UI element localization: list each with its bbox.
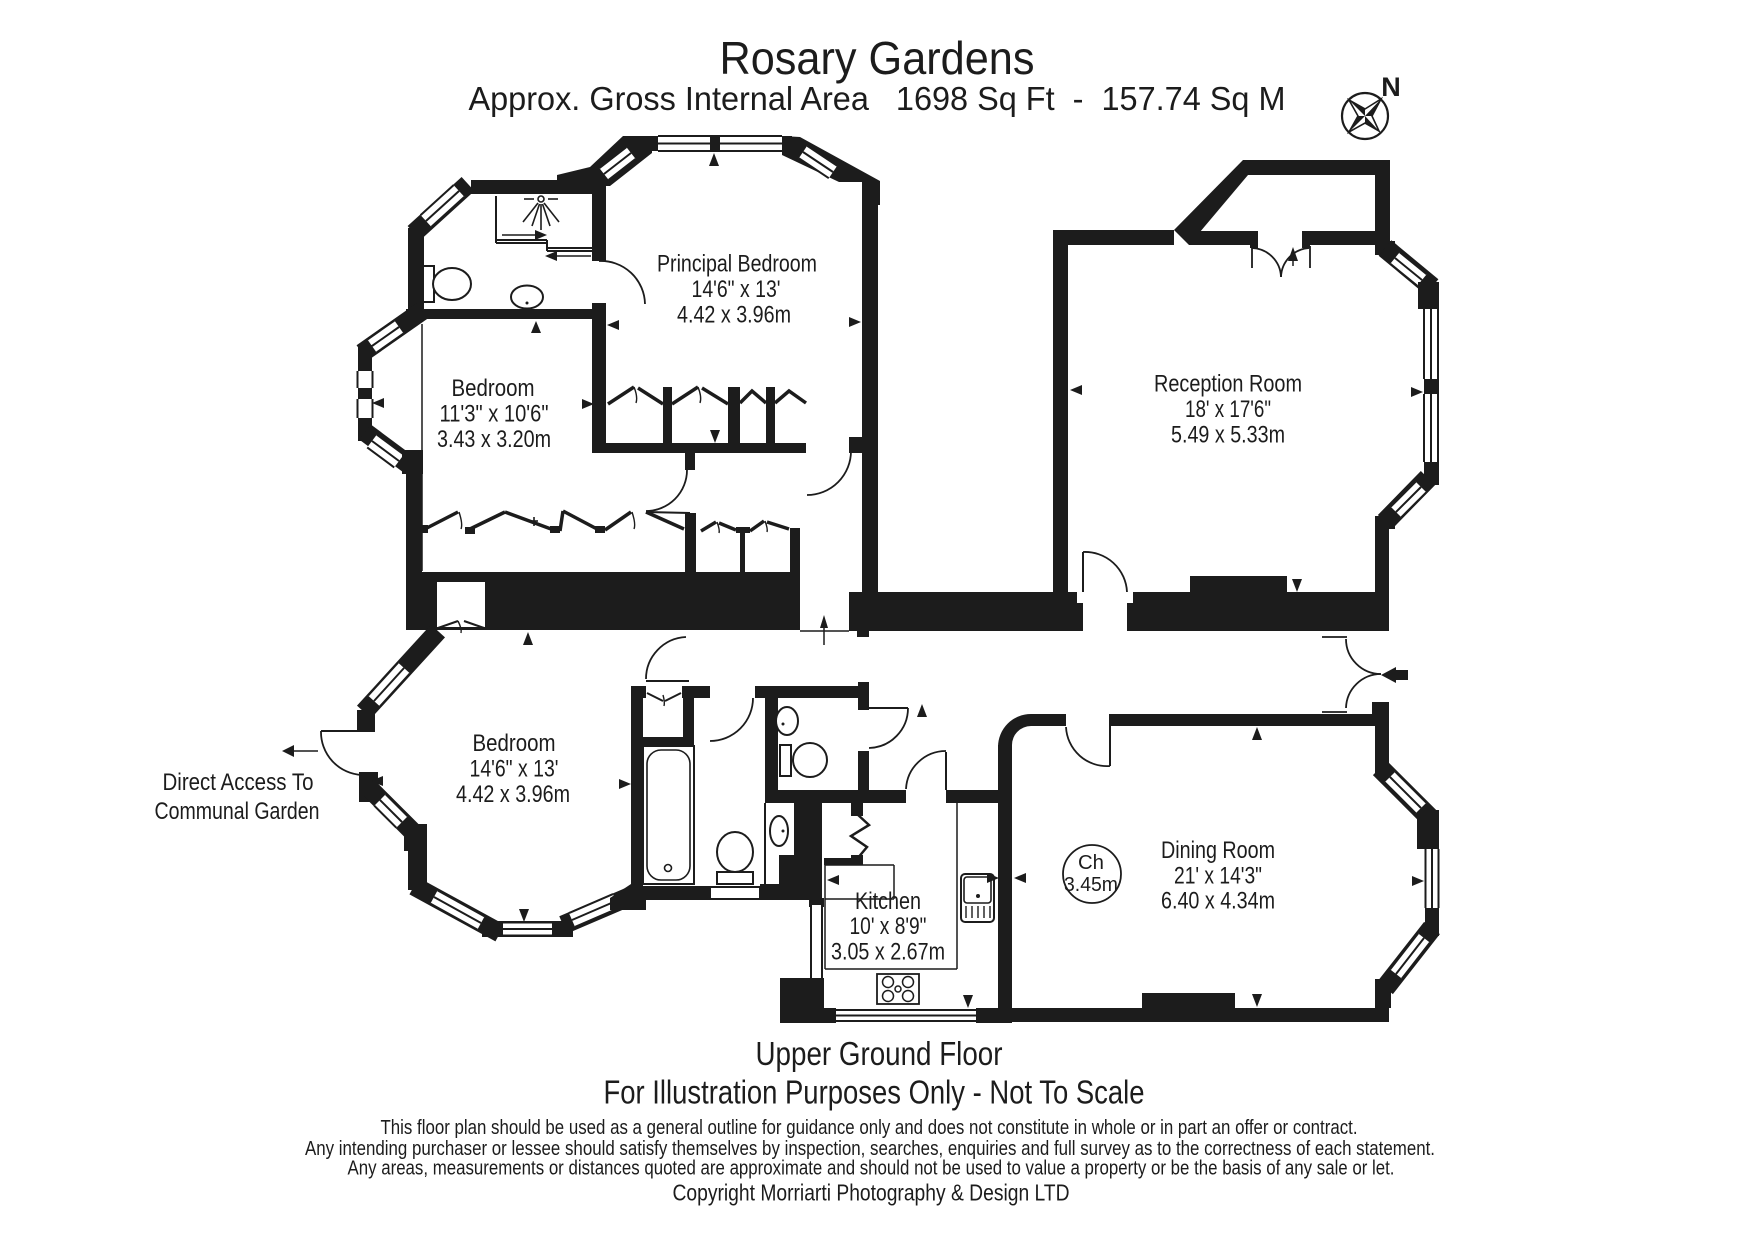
svg-text:Approx. Gross Internal Area: Approx. Gross Internal Area 1698 Sq Ft -… xyxy=(469,80,1286,117)
svg-text:14'6" x 13': 14'6" x 13' xyxy=(470,756,559,783)
svg-text:Bedroom: Bedroom xyxy=(473,730,556,757)
svg-text:3.43 x 3.20m: 3.43 x 3.20m xyxy=(437,426,551,453)
svg-text:Reception Room: Reception Room xyxy=(1154,371,1302,398)
svg-text:18' x 17'6": 18' x 17'6" xyxy=(1185,396,1271,423)
svg-text:Dining Room: Dining Room xyxy=(1161,837,1275,864)
svg-text:Copyright Morriarti Photograph: Copyright Morriarti Photography & Design… xyxy=(673,1180,1070,1206)
svg-text:For Illustration Purposes Only: For Illustration Purposes Only - Not To … xyxy=(604,1074,1145,1111)
svg-text:3.45m: 3.45m xyxy=(1064,874,1118,896)
svg-text:Kitchen: Kitchen xyxy=(855,888,921,915)
svg-text:Communal Garden: Communal Garden xyxy=(155,798,320,825)
svg-text:14'6" x 13': 14'6" x 13' xyxy=(692,276,781,303)
svg-text:4.42 x 3.96m: 4.42 x 3.96m xyxy=(456,781,570,808)
svg-text:Principal Bedroom: Principal Bedroom xyxy=(657,251,817,278)
svg-text:Any areas, measurements or dis: Any areas, measurements or distances quo… xyxy=(348,1158,1395,1180)
svg-text:Upper Ground Floor: Upper Ground Floor xyxy=(756,1035,1003,1072)
svg-text:Direct Access To: Direct Access To xyxy=(163,769,314,796)
svg-text:6.40 x 4.34m: 6.40 x 4.34m xyxy=(1161,888,1275,915)
svg-text:4.42 x 3.96m: 4.42 x 3.96m xyxy=(677,302,791,329)
svg-text:This floor plan should be used: This floor plan should be used as a gene… xyxy=(381,1117,1358,1139)
svg-text:N: N xyxy=(1381,72,1401,102)
svg-text:5.49 x 5.33m: 5.49 x 5.33m xyxy=(1171,422,1285,449)
svg-text:3.05 x 2.67m: 3.05 x 2.67m xyxy=(831,938,945,965)
svg-text:Rosary Gardens: Rosary Gardens xyxy=(720,32,1035,84)
svg-text:21' x 14'3": 21' x 14'3" xyxy=(1174,863,1262,890)
svg-text:Bedroom: Bedroom xyxy=(452,375,535,402)
svg-text:Ch: Ch xyxy=(1078,852,1104,874)
svg-text:10' x 8'9": 10' x 8'9" xyxy=(850,913,927,940)
svg-text:11'3" x 10'6": 11'3" x 10'6" xyxy=(440,401,549,428)
